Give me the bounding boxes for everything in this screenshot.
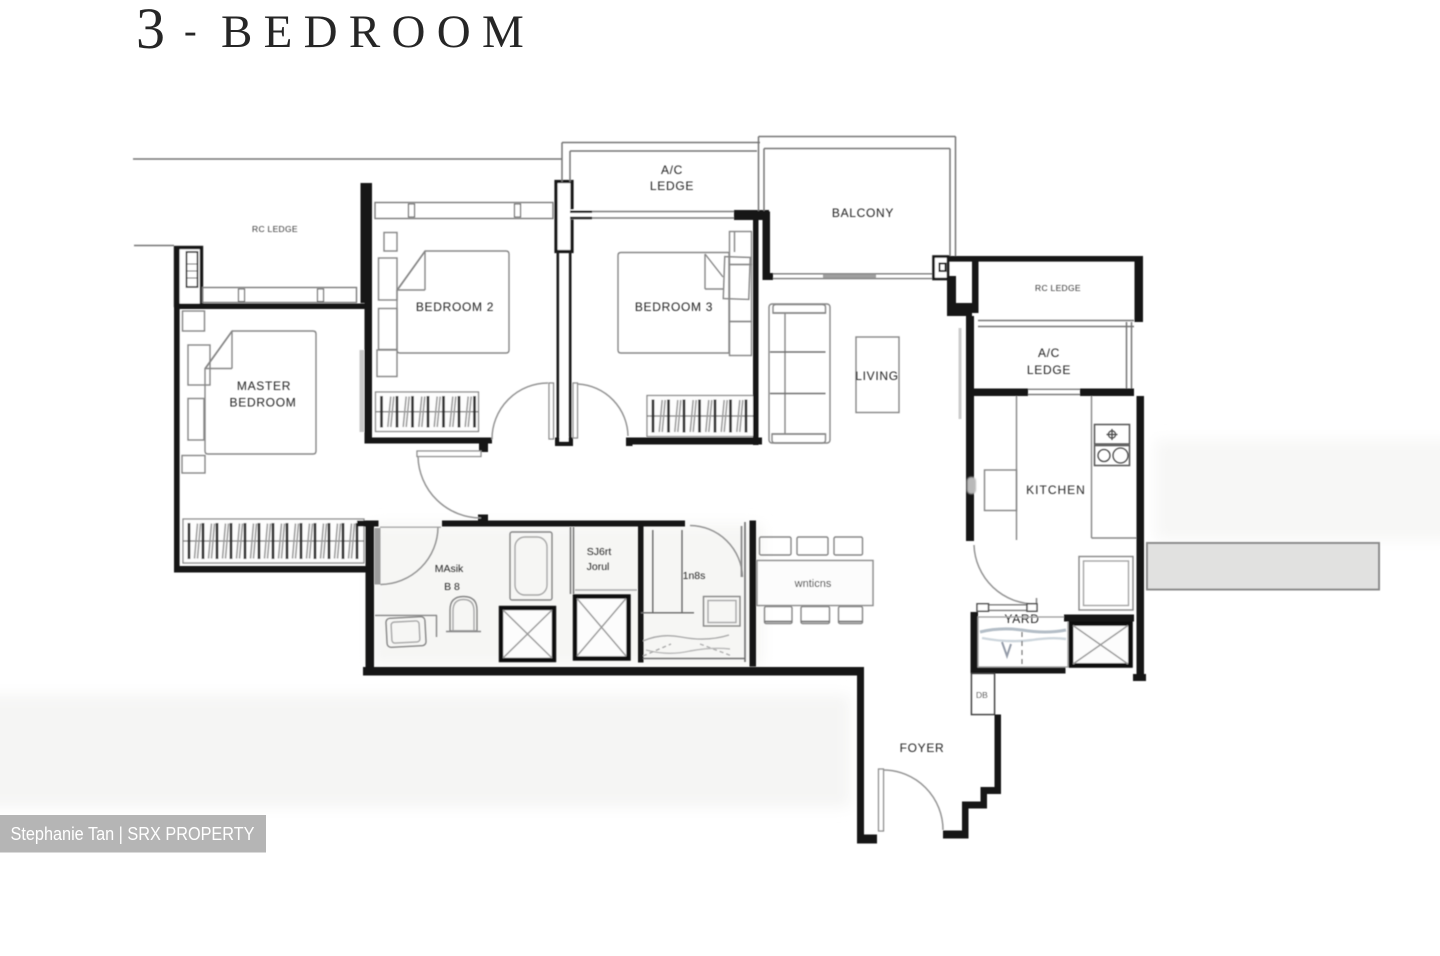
svg-text:-: - [184,10,197,52]
svg-text:LEDGE: LEDGE [650,179,694,193]
svg-text:RC LEDGE: RC LEDGE [252,224,298,234]
svg-text:FOYER: FOYER [900,741,945,755]
svg-text:3: 3 [136,0,165,61]
svg-text:B 8: B 8 [444,581,460,593]
svg-text:MASTER: MASTER [237,379,291,393]
svg-text:BEDROOM: BEDROOM [221,6,535,58]
svg-text:wnticns: wnticns [794,578,832,590]
svg-text:BALCONY: BALCONY [832,206,894,220]
svg-text:SJ6rt: SJ6rt [587,546,612,558]
svg-text:MAsik: MAsik [435,563,464,575]
svg-text:BEDROOM: BEDROOM [230,396,297,410]
svg-text:1n8s: 1n8s [683,570,706,582]
svg-text:DB: DB [976,690,988,700]
svg-text:RC LEDGE: RC LEDGE [1035,283,1081,293]
svg-text:A/C: A/C [661,163,683,177]
svg-text:Stephanie Tan | SRX PROPERTY: Stephanie Tan | SRX PROPERTY [11,823,255,844]
svg-text:LIVING: LIVING [855,369,899,383]
svg-text:BEDROOM 2: BEDROOM 2 [416,300,494,314]
svg-text:YARD: YARD [1004,612,1039,626]
svg-text:Jorul: Jorul [587,561,610,573]
svg-text:BEDROOM 3: BEDROOM 3 [635,300,713,314]
svg-text:LEDGE: LEDGE [1027,363,1071,377]
svg-text:KITCHEN: KITCHEN [1026,483,1086,497]
svg-text:A/C: A/C [1038,346,1060,360]
